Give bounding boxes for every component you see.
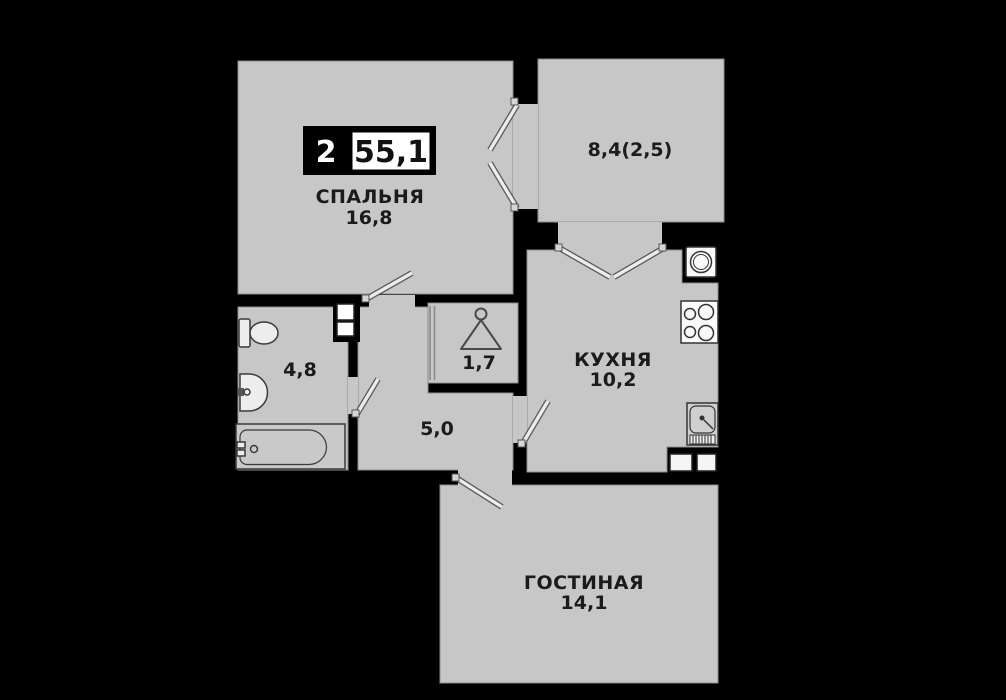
kitchen-area: 10,2: [590, 369, 637, 391]
bathtub-icon: [236, 424, 345, 469]
doorway-bathroom-hallway: [348, 377, 358, 414]
toilet-icon: [239, 319, 278, 347]
hinge: [659, 244, 666, 251]
floor-plan-canvas: 2 55,1 СПАЛЬНЯ 16,8 8,4(2,5) КУХНЯ 10,2 …: [0, 0, 1006, 700]
wardrobe-area: 1,7: [462, 352, 496, 374]
hinge: [362, 295, 369, 302]
bedroom-area: 16,8: [346, 207, 393, 229]
hinge: [352, 410, 359, 417]
living-label: ГОСТИНАЯ: [524, 572, 644, 594]
hallway-area: 5,0: [420, 418, 454, 440]
bedroom-label: СПАЛЬНЯ: [316, 186, 425, 208]
bathroom-sink-icon: [238, 374, 268, 411]
duct-shaft: [333, 300, 360, 342]
room-bedroom-floor: [238, 61, 513, 294]
kitchen-sink-icon: [687, 403, 718, 445]
hinge: [511, 98, 518, 105]
badge-room-count: 2: [316, 135, 337, 170]
floor-plan: 2 55,1 СПАЛЬНЯ 16,8 8,4(2,5) КУХНЯ 10,2 …: [0, 0, 1006, 700]
hinge: [555, 244, 562, 251]
hinge: [452, 474, 459, 481]
balcony-area: 8,4(2,5): [588, 139, 673, 161]
doorway-balcony-kitchen: [558, 222, 662, 251]
stove-icon: [681, 301, 718, 343]
hinge: [518, 440, 525, 447]
washing-machine-icon: [686, 247, 716, 277]
apartment-badge: 2 55,1: [303, 126, 436, 175]
badge-total-area: 55,1: [354, 135, 428, 170]
kitchen-label: КУХНЯ: [574, 349, 652, 371]
doorway-bedroom-balcony: [513, 104, 538, 209]
living-area: 14,1: [561, 592, 608, 614]
bathroom-area: 4,8: [283, 359, 317, 381]
hinge: [511, 204, 518, 211]
